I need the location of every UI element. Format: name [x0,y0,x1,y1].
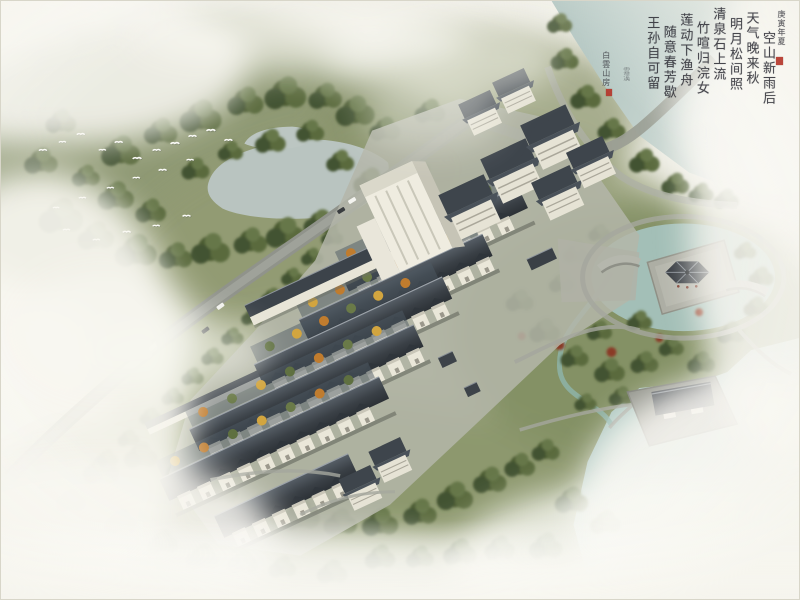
architectural-rendering: 庚寅年夏 空山新雨后 天气晚来秋 明月松间照 清泉石上流 竹喧归浣女 莲动下渔舟… [0,0,800,600]
mist-layer [1,1,799,600]
red-seal-stamp [606,89,612,96]
red-seal-stamp [776,57,783,65]
scene-rendering [1,1,799,600]
